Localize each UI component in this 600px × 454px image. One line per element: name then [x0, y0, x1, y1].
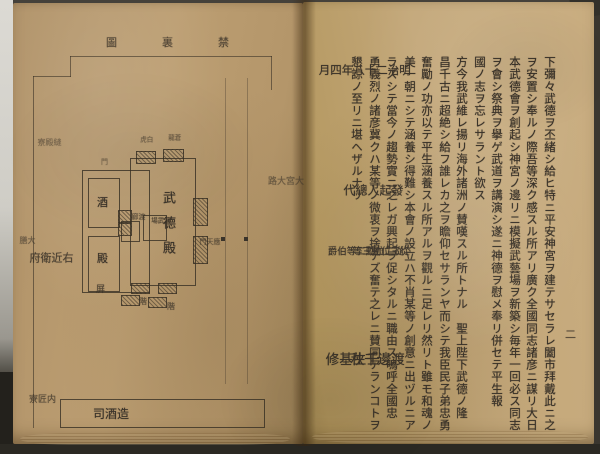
plate-title-char-middle: 裏 [162, 34, 173, 50]
east-wing-box-upper [193, 198, 208, 226]
text-column-4: ヲ會シ祭典ヲ擧ゲ武道ヲ講演シ遂ニ神德ヲ慰メ奉リ併セテ平生報 [487, 56, 502, 438]
office-label-daizen: 大膳 [19, 236, 35, 248]
plate-title-char-right: 禁 [218, 34, 229, 50]
left-page-fore-edge [20, 433, 290, 445]
tower-box-right [163, 149, 184, 162]
screen-label: 屏 [96, 282, 105, 295]
tower-label-left: 白虎 [139, 136, 152, 143]
avenue-line-west [225, 78, 226, 384]
office-label-takumi: 内匠寮 [27, 394, 54, 405]
date-line: 明治二十八年四月 [318, 64, 410, 76]
avenue-gate-dot-1 [221, 237, 225, 241]
text-column-8: 奮勵ノ功亦以テ平生涵養スル所アルヲ觀ルニ足レリ然リト雖モ和魂ノ [417, 56, 432, 438]
backdrop-left-strip [0, 0, 13, 376]
text-column-7: 昌千古ニ超絶シ給フ誰レカ之ヲ瞻仰セサランヤ而シテ我臣民子弟忠勇 [435, 56, 450, 438]
office-label-nuidono: 縫殿寮 [37, 138, 61, 154]
tower-box-left [136, 151, 156, 164]
plate-title-char-left: 圖 [106, 34, 117, 50]
stair-label-b: 階 [167, 301, 175, 312]
avenue-gate-dot-2 [244, 237, 248, 241]
west-lower-hall-label: 殿 [97, 250, 108, 266]
text-column-2: ヲ安置シ奉ルノ際吾等深ク感スル所アリ廣ク全國同志諸彦ニ謀リ大日 [522, 56, 537, 438]
stair-box-1 [131, 283, 150, 294]
plate-border-step [33, 76, 71, 77]
book-photo: 圖 裏 禁 大宮大路 縫殿寮 大膳 右近衛府 内匠寮 司酒造 酒 殿 渡廊 屏 … [0, 0, 600, 454]
signatory-name-2: 壬生基修 [323, 352, 377, 369]
stair-box-2 [158, 283, 177, 294]
page-number: 二 [565, 326, 576, 342]
inner-annex-box [121, 221, 140, 242]
text-column-1: 下彌々武德ヲ丕緒シ給ヒ特ニ平安神宮ヲ建テサセラレ闔市拜戴此ニ之 [540, 56, 555, 438]
text-column-6: 方今我武維レ揚リ海外諸洲ノ賛嘆スル所トナル 聖上陛下武德ノ隆 [452, 56, 467, 438]
tower-label-right: 蒼龍 [167, 134, 180, 141]
office-label-ukonoe: 右近衛府 [29, 252, 73, 266]
office-label-miki: 司酒造 [93, 405, 229, 422]
west-upper-hall-label: 酒 [97, 194, 108, 210]
plate-border-top [70, 56, 272, 57]
stair-label-a: 階 [139, 296, 147, 307]
plate-border-left-tick [70, 56, 71, 77]
plate-border-right-tick [271, 56, 272, 90]
avenue-line-east [247, 78, 248, 384]
inner-hall-label: 演武場 [150, 217, 170, 224]
stair-box-4 [148, 297, 167, 308]
book-spine [292, 0, 316, 446]
side-gate-label: 門 [101, 157, 108, 167]
signatory-heading: 發起人總代 [343, 184, 403, 197]
gate-label: 應天門 [199, 238, 220, 248]
text-column-5: 國ノ志ヲ忘レサラント欲ス [470, 56, 485, 438]
text-column-3: 本武德會ヲ創起シ神宮ノ邊リニ模擬武藝場ヲ新築シ毎年一回必ス同志 [505, 56, 520, 438]
signatory-rank-2: 從二位勳二等伯爵 [326, 246, 402, 257]
avenue-label: 大宮大路 [266, 176, 302, 203]
stair-box-3 [121, 295, 140, 306]
